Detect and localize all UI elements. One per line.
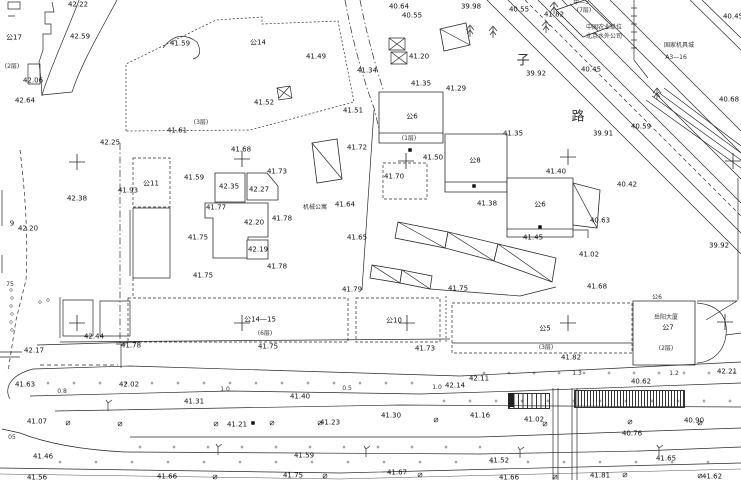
sidewalk-tick-icon xyxy=(307,382,310,385)
elevation-label: 41.07 xyxy=(27,419,47,426)
fence-post-icon xyxy=(10,289,13,292)
building-label: 公6 xyxy=(406,114,417,121)
building-label: 公8 xyxy=(469,158,480,165)
annotation-label: (3层) xyxy=(539,345,554,351)
elevation-label: 41.82 xyxy=(544,12,564,19)
sidewalk-tick-icon xyxy=(73,382,76,385)
utility-marker-icon xyxy=(418,473,422,477)
road-lines xyxy=(0,362,741,480)
sidewalk-tick-icon xyxy=(377,446,380,449)
utility-marker-icon xyxy=(118,422,122,426)
entrance-marker-icon xyxy=(252,422,255,425)
survey-site-plan: 42.2242.5942.0642.64公17(2层)41.59公1441.49… xyxy=(0,0,741,480)
sidewalk-tick-icon xyxy=(708,372,711,375)
building-label: 公7 xyxy=(662,325,673,332)
elevation-label: 41.52 xyxy=(489,458,509,465)
central-building-cluster xyxy=(120,86,342,345)
lamp-post-icon xyxy=(518,447,524,458)
fence-post-icon xyxy=(39,301,42,304)
elevation-label: 41.52 xyxy=(254,100,274,107)
sidewalk-tick-icon xyxy=(359,382,362,385)
sidewalk-tick-icon xyxy=(343,446,346,449)
elevation-label: 40.90 xyxy=(684,418,704,425)
elevation-label: 40.68 xyxy=(719,97,739,104)
elevation-label: 42.11 xyxy=(469,376,489,383)
building-label: 公17 xyxy=(6,35,22,42)
sidewalk-tick-icon xyxy=(139,446,142,449)
sidewalk-tick-icon xyxy=(173,446,176,449)
elevation-label: 41.29 xyxy=(446,86,466,93)
elevation-label: 42.20 xyxy=(18,226,38,233)
annotation-label: 甲—5 xyxy=(573,0,589,6)
sidewalk-tick-icon xyxy=(131,461,134,464)
lamp-post-icon xyxy=(216,444,222,455)
elevation-label: 42.14 xyxy=(445,383,465,390)
elevation-label: 41.45 xyxy=(523,235,543,242)
elevation-label: 41.67 xyxy=(387,470,407,477)
annotation-label: 0.5 xyxy=(342,386,352,392)
annotation-label: 05 xyxy=(8,435,16,441)
elevation-label: 39.91 xyxy=(593,131,613,138)
sidewalk-tick-icon xyxy=(558,372,561,375)
utility-marker-icon xyxy=(66,421,70,425)
elevation-label: 41.35 xyxy=(503,131,523,138)
sidewalk-tick-icon xyxy=(599,461,602,464)
sidewalk-tick-icon xyxy=(445,446,448,449)
elevation-label: 41.50 xyxy=(423,155,443,162)
elevation-label: 41.81 xyxy=(590,473,610,480)
tree-icon xyxy=(542,21,550,33)
fence-post-icon xyxy=(11,297,14,300)
elevation-label: 40.55 xyxy=(509,7,529,14)
elevation-label: 41.59 xyxy=(294,453,314,460)
elevation-label: 41.35 xyxy=(411,81,431,88)
annotation-label: 中国农业单位 xyxy=(586,25,622,31)
elevation-label: 41.72 xyxy=(347,145,367,152)
elevation-label: 40.76 xyxy=(622,431,642,438)
sidewalk-tick-icon xyxy=(479,446,482,449)
fence-post-icon xyxy=(10,321,13,324)
elevation-label: 41.70 xyxy=(384,174,404,181)
utility-marker-icon xyxy=(623,473,627,477)
annotation-label: 1.0 xyxy=(220,387,230,393)
hatched-crosswalk-strip xyxy=(574,390,685,408)
elevation-label: 42.38 xyxy=(67,196,87,203)
elevation-label: 42.35 xyxy=(219,184,239,191)
platform-end-block xyxy=(508,393,514,407)
elevation-label: 40.63 xyxy=(590,218,610,225)
elevation-label: 41.82 xyxy=(561,355,581,362)
elevation-label: 41.64 xyxy=(335,202,355,209)
elevation-label: 41.77 xyxy=(206,205,226,212)
sidewalk-tick-icon xyxy=(333,382,336,385)
elevation-label: 41.73 xyxy=(415,346,435,353)
elevation-label: 41.16 xyxy=(470,413,490,420)
sidewalk-tick-icon xyxy=(455,461,458,464)
elevation-label: 41.56 xyxy=(27,475,47,480)
street-name-char: 路 xyxy=(571,111,584,124)
elevation-label: 40.59 xyxy=(631,124,651,131)
building-label: 公11 xyxy=(143,181,159,188)
sidewalk-tick-icon xyxy=(658,372,661,375)
sidewalk-tick-icon xyxy=(151,382,154,385)
lamp-post-icon xyxy=(106,400,112,411)
sidewalk-tick-icon xyxy=(608,372,611,375)
sidewalk-tick-icon xyxy=(385,382,388,385)
elevation-label: 41.34 xyxy=(357,68,377,75)
annotation-label: 岳阳大厦 xyxy=(654,315,678,321)
elevation-label: 41.02 xyxy=(579,252,599,259)
sidewalk-tick-icon xyxy=(635,461,638,464)
lamp-post-icon xyxy=(364,446,370,457)
elevation-label: 41.75 xyxy=(193,273,213,280)
sidewalk-tick-icon xyxy=(707,461,710,464)
fence-post-icon xyxy=(11,329,14,332)
sidewalk-tick-icon xyxy=(383,461,386,464)
grid-cross-icon xyxy=(398,153,414,169)
sidewalk-tick-icon xyxy=(411,446,414,449)
sidewalk-tick-icon xyxy=(683,372,686,375)
annotation-label: 1.3 xyxy=(572,371,582,377)
topleft-parcels xyxy=(0,0,354,372)
grid-cross-icon xyxy=(560,149,576,165)
annotation-label: 1.0 xyxy=(432,385,442,391)
sidewalk-tick-icon xyxy=(207,446,210,449)
building-label: 公14—15 xyxy=(244,317,276,324)
elevation-label: 9 xyxy=(10,221,14,228)
building-label: 公10 xyxy=(386,318,402,325)
elevation-label: 41.68 xyxy=(231,147,251,154)
annotation-label: (2层) xyxy=(5,64,20,70)
elevation-label: 41.59 xyxy=(170,41,190,48)
elevation-label: 41.49 xyxy=(306,54,326,61)
elevation-label: 41.23 xyxy=(320,420,340,427)
annotation-label: 0.8 xyxy=(57,389,67,395)
annotation-label: (7层) xyxy=(577,8,592,14)
elevation-label: 40.62 xyxy=(631,379,651,386)
elevation-label: 39.98 xyxy=(461,4,481,11)
sidewalk-tick-icon xyxy=(167,461,170,464)
elevation-label: 42.17 xyxy=(24,348,44,355)
elevation-label: 41.93 xyxy=(118,188,138,195)
elevation-label: 40.45 xyxy=(581,67,601,74)
utility-marker-icon xyxy=(628,420,632,424)
elevation-label: 42.19 xyxy=(248,247,268,254)
sidewalk-tick-icon xyxy=(281,382,284,385)
sidewalk-tick-icon xyxy=(563,461,566,464)
sidewalk-tick-icon xyxy=(177,382,180,385)
elevation-label: 41.46 xyxy=(33,454,53,461)
sidewalk-tick-icon xyxy=(508,372,511,375)
elevation-label: 41.66 xyxy=(157,474,177,480)
elevation-label: 41.63 xyxy=(15,382,35,389)
elevation-label: 40.45 xyxy=(723,14,741,21)
sidewalk-tick-icon xyxy=(275,461,278,464)
sidewalk-tick-icon xyxy=(347,461,350,464)
sidewalk-tick-icon xyxy=(47,382,50,385)
elevation-label: 41.65 xyxy=(656,456,676,463)
elevation-label: 41.30 xyxy=(381,413,401,420)
sidewalk-tick-icon xyxy=(495,400,498,403)
annotation-label: 国家机具城 xyxy=(664,43,694,49)
utility-marker-icon xyxy=(553,475,557,479)
elevation-label: 41.78 xyxy=(267,264,287,271)
elevation-label: 41.75 xyxy=(258,344,278,351)
sidewalk-tick-icon xyxy=(241,446,244,449)
utility-marker-icon xyxy=(434,418,438,422)
sidewalk-tick-icon xyxy=(203,382,206,385)
grid-cross-icon xyxy=(717,314,733,330)
elevation-label: 42.27 xyxy=(249,187,269,194)
grid-cross-icon xyxy=(69,154,85,170)
elevation-label: 42.64 xyxy=(15,98,35,105)
elevation-label: 41.68 xyxy=(587,284,607,291)
elevation-label: 40.55 xyxy=(402,13,422,20)
sidewalk-tick-icon xyxy=(583,372,586,375)
building-label: 公6 xyxy=(534,202,545,209)
street-name-char: 子 xyxy=(516,55,529,68)
utility-marker-icon xyxy=(270,421,274,425)
building-label: 公5 xyxy=(539,326,550,333)
annotation-label: 机械公寓 xyxy=(303,205,327,211)
elevation-label: 42.06 xyxy=(23,78,43,85)
fence-post-icon xyxy=(11,313,14,316)
annotation-label: 公6 xyxy=(652,295,662,301)
entrance-marker-icon xyxy=(473,185,476,188)
fence-post-icon xyxy=(47,299,50,302)
elevation-label: 41.61 xyxy=(167,128,187,135)
annotation-label: (6层) xyxy=(258,331,273,337)
grid-cross-icon xyxy=(560,315,576,331)
elevation-label: 41.31 xyxy=(184,399,204,406)
sidewalk-tick-icon xyxy=(309,446,312,449)
sidewalk-tick-icon xyxy=(229,382,232,385)
elevation-label: 41.78 xyxy=(272,216,292,223)
elevation-label: 40.64 xyxy=(389,4,409,11)
sidewalk-tick-icon xyxy=(95,461,98,464)
elevation-label: 41.62 xyxy=(702,474,722,480)
sidewalk-tick-icon xyxy=(239,461,242,464)
elevation-label: 41.20 xyxy=(409,54,429,61)
elevation-label: 41.38 xyxy=(477,201,497,208)
elevation-label: 42.59 xyxy=(70,34,90,41)
elevation-label: 42.21 xyxy=(717,369,737,376)
entrance-marker-icon xyxy=(539,226,542,229)
sidewalk-tick-icon xyxy=(443,400,446,403)
elevation-label: 39.92 xyxy=(709,243,729,250)
elevation-label: 41.66 xyxy=(499,475,519,480)
sidewalk-tick-icon xyxy=(255,382,258,385)
elevation-label: 41.78 xyxy=(121,343,141,350)
sidewalk-tick-icon xyxy=(419,461,422,464)
elevation-label: 42.44 xyxy=(84,334,104,341)
sidewalk-tick-icon xyxy=(469,400,472,403)
elevation-label: 41.65 xyxy=(347,235,367,242)
elevation-label: 41.51 xyxy=(343,108,363,115)
elevation-label: 41.75 xyxy=(448,286,468,293)
elevation-label: 41.75 xyxy=(188,235,208,242)
utility-marker-icon xyxy=(323,474,327,478)
elevation-label: 41.73 xyxy=(267,169,287,176)
elevation-label: 41.40 xyxy=(546,169,566,176)
sidewalk-tick-icon xyxy=(411,382,414,385)
grid-cross-icon xyxy=(69,315,85,331)
annotation-label: 北京水外公司 xyxy=(586,34,622,40)
utility-marker-icon xyxy=(214,422,218,426)
elevation-label: 41.40 xyxy=(290,394,310,401)
sidewalk-tick-icon xyxy=(527,461,530,464)
annotation-label: (2层) xyxy=(659,346,674,352)
annotation-label: 75 xyxy=(6,282,14,288)
elevation-label: 39.92 xyxy=(526,71,546,78)
sidewalk-tick-icon xyxy=(729,400,732,403)
elevation-label: 42.22 xyxy=(68,2,88,9)
tree-icon xyxy=(489,26,497,38)
elevation-label: 41.21 xyxy=(227,422,247,429)
ladder-platform-strip xyxy=(508,393,550,409)
annotation-label: (3层) xyxy=(194,120,209,126)
sidewalk-tick-icon xyxy=(633,372,636,375)
elevation-label: 42.20 xyxy=(244,220,264,227)
elevation-label: 41.79 xyxy=(342,287,362,294)
sidewalk-tick-icon xyxy=(311,461,314,464)
elevation-label: 42.02 xyxy=(119,382,139,389)
entrance-marker-icon xyxy=(409,149,412,152)
annotation-label: (1层) xyxy=(402,136,417,142)
building-label: 公14 xyxy=(250,40,266,47)
sidewalk-tick-icon xyxy=(275,446,278,449)
annotation-label: 1.2 xyxy=(669,371,679,377)
sidewalk-tick-icon xyxy=(203,461,206,464)
annotation-label: A3—16 xyxy=(665,55,687,61)
elevation-label: 40.42 xyxy=(617,182,637,189)
elevation-label: 42.25 xyxy=(100,140,120,147)
fence-post-icon xyxy=(10,305,13,308)
sidewalk-tick-icon xyxy=(59,461,62,464)
sidewalk-tick-icon xyxy=(99,382,102,385)
elevation-label: 41.02 xyxy=(524,417,544,424)
elevation-label: 41.59 xyxy=(184,175,204,182)
elevation-label: 41.75 xyxy=(283,473,303,480)
sidewalk-tick-icon xyxy=(703,400,706,403)
